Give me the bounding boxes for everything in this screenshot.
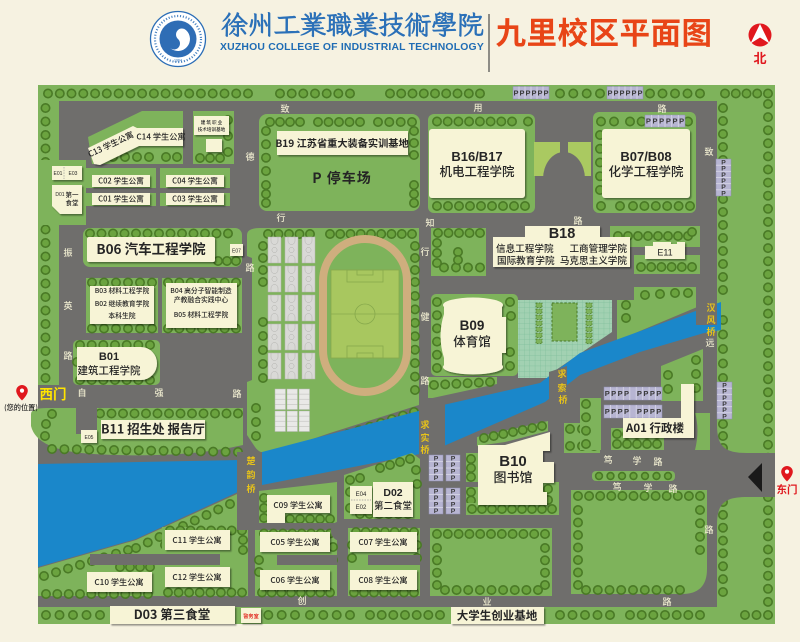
svg-text:九里校区平面图: 九里校区平面图 bbox=[496, 9, 713, 53]
svg-text:路: 路 bbox=[420, 374, 429, 387]
svg-text:致: 致 bbox=[704, 145, 713, 158]
svg-text:E03: E03 bbox=[69, 171, 78, 177]
svg-text:图书馆: 图书馆 bbox=[493, 467, 532, 486]
svg-text:E01: E01 bbox=[54, 171, 63, 177]
svg-text:产教融合实践中心: 产教融合实践中心 bbox=[174, 294, 229, 304]
svg-text:业: 业 bbox=[482, 595, 491, 608]
svg-text:食堂: 食堂 bbox=[66, 197, 80, 207]
svg-text:P: P bbox=[679, 117, 684, 126]
svg-text:自: 自 bbox=[77, 386, 86, 399]
svg-text:路: 路 bbox=[653, 455, 662, 468]
svg-text:学: 学 bbox=[643, 481, 652, 494]
svg-text:C09 学生公寓: C09 学生公寓 bbox=[273, 499, 322, 511]
svg-text:C05 学生公寓: C05 学生公寓 bbox=[270, 536, 319, 548]
svg-text:P: P bbox=[605, 407, 610, 416]
svg-text:P: P bbox=[543, 88, 548, 97]
svg-text:P: P bbox=[618, 407, 623, 416]
svg-text:笃: 笃 bbox=[612, 480, 621, 493]
svg-text:大学生创业基地: 大学生创业基地 bbox=[457, 608, 538, 624]
svg-text:B03 材料工程学院: B03 材料工程学院 bbox=[95, 285, 150, 295]
svg-text:建 筑 职 业: 建 筑 职 业 bbox=[201, 119, 223, 126]
svg-text:P: P bbox=[531, 88, 536, 97]
svg-text:P: P bbox=[451, 508, 456, 515]
svg-text:致: 致 bbox=[280, 102, 289, 115]
svg-text:D03 第三食堂: D03 第三食堂 bbox=[134, 604, 211, 623]
svg-text:求: 求 bbox=[557, 367, 566, 380]
svg-text:建筑工程学院: 建筑工程学院 bbox=[78, 363, 141, 378]
svg-text:行: 行 bbox=[276, 211, 285, 224]
svg-text:求: 求 bbox=[420, 418, 429, 431]
svg-text:1964: 1964 bbox=[174, 59, 182, 63]
svg-text:D01: D01 bbox=[55, 192, 64, 198]
svg-text:路: 路 bbox=[573, 214, 582, 227]
svg-text:P: P bbox=[519, 88, 524, 97]
svg-text:A01 行政楼: A01 行政楼 bbox=[625, 420, 685, 436]
svg-text:C14 学生公寓: C14 学生公寓 bbox=[136, 131, 185, 143]
svg-text:东门: 东门 bbox=[777, 482, 798, 497]
svg-text:路: 路 bbox=[245, 261, 254, 274]
svg-text:知: 知 bbox=[425, 216, 434, 229]
svg-text:用: 用 bbox=[473, 101, 482, 114]
svg-text:B11 招生处 报告厅: B11 招生处 报告厅 bbox=[101, 419, 205, 438]
svg-text:西门: 西门 bbox=[40, 383, 67, 403]
svg-text:笃: 笃 bbox=[603, 453, 612, 466]
svg-text:E02: E02 bbox=[356, 505, 367, 511]
svg-text:P: P bbox=[650, 407, 655, 416]
svg-text:P 停车场: P 停车场 bbox=[312, 168, 372, 188]
svg-text:韵: 韵 bbox=[246, 468, 255, 481]
svg-text:德: 德 bbox=[245, 150, 254, 163]
svg-text:B01: B01 bbox=[99, 351, 119, 363]
svg-text:C11 学生公寓: C11 学生公寓 bbox=[172, 534, 221, 546]
svg-text:桥: 桥 bbox=[420, 443, 429, 456]
svg-text:P: P bbox=[656, 389, 661, 398]
svg-text:国际教育学院: 国际教育学院 bbox=[497, 253, 555, 267]
svg-text:P: P bbox=[513, 88, 518, 97]
svg-text:P: P bbox=[619, 88, 624, 97]
svg-text:P: P bbox=[611, 389, 616, 398]
svg-text:E04: E04 bbox=[356, 492, 367, 498]
svg-text:C04 学生公寓: C04 学生公寓 bbox=[172, 176, 218, 187]
svg-text:P: P bbox=[434, 475, 439, 482]
svg-text:P: P bbox=[451, 475, 456, 482]
svg-text:P: P bbox=[625, 88, 630, 97]
svg-text:P: P bbox=[659, 117, 664, 126]
svg-text:C12 学生公寓: C12 学生公寓 bbox=[172, 571, 221, 583]
svg-text:XUZHOU COLLEGE OF INDUSTRIAL T: XUZHOU COLLEGE OF INDUSTRIAL TECHNOLOGY bbox=[220, 42, 484, 53]
svg-text:北: 北 bbox=[753, 48, 766, 67]
svg-text:桥: 桥 bbox=[246, 482, 255, 495]
svg-text:英: 英 bbox=[63, 299, 72, 312]
svg-text:P: P bbox=[646, 117, 651, 126]
svg-text:技术培训基地: 技术培训基地 bbox=[198, 126, 226, 133]
svg-text:E05: E05 bbox=[85, 435, 94, 441]
svg-text:行: 行 bbox=[420, 245, 429, 258]
svg-text:桥: 桥 bbox=[558, 393, 567, 406]
svg-text:警务室: 警务室 bbox=[243, 612, 259, 620]
svg-text:P: P bbox=[631, 88, 636, 97]
svg-text:强: 强 bbox=[154, 386, 163, 399]
svg-text:P: P bbox=[721, 190, 726, 197]
svg-text:学: 学 bbox=[632, 454, 641, 467]
svg-text:P: P bbox=[605, 389, 610, 398]
svg-text:路: 路 bbox=[63, 349, 72, 362]
svg-text:路: 路 bbox=[662, 595, 671, 608]
svg-text:徐州工業職業技術學院: 徐州工業職業技術學院 bbox=[221, 6, 484, 42]
svg-text:化学工程学院: 化学工程学院 bbox=[608, 161, 684, 180]
svg-text:B05 材料工程学院: B05 材料工程学院 bbox=[174, 309, 229, 319]
svg-text:P: P bbox=[666, 117, 671, 126]
svg-text:P: P bbox=[643, 407, 648, 416]
svg-text:马克思主义学院: 马克思主义学院 bbox=[560, 253, 628, 267]
svg-text:P: P bbox=[722, 413, 727, 420]
svg-text:创: 创 bbox=[297, 594, 306, 607]
svg-text:B02 继续教育学院: B02 继续教育学院 bbox=[95, 298, 150, 308]
svg-text:E11: E11 bbox=[657, 248, 672, 258]
svg-text:C06 学生公寓: C06 学生公寓 bbox=[270, 574, 319, 586]
svg-text:楚: 楚 bbox=[246, 454, 255, 467]
svg-text:P: P bbox=[637, 407, 642, 416]
svg-text:E07: E07 bbox=[232, 249, 241, 255]
svg-text:B06 汽车工程学院: B06 汽车工程学院 bbox=[96, 238, 206, 258]
svg-text:B18: B18 bbox=[549, 226, 576, 242]
svg-text:体育馆: 体育馆 bbox=[453, 331, 491, 350]
svg-text:P: P bbox=[672, 117, 677, 126]
svg-text:P: P bbox=[637, 88, 642, 97]
svg-text:P: P bbox=[525, 88, 530, 97]
svg-text:路: 路 bbox=[704, 523, 713, 536]
svg-text:健: 健 bbox=[420, 310, 429, 323]
svg-text:振: 振 bbox=[63, 246, 72, 259]
svg-text:C01 学生公寓: C01 学生公寓 bbox=[98, 194, 144, 205]
svg-text:P: P bbox=[637, 389, 642, 398]
svg-text:路: 路 bbox=[668, 482, 677, 495]
svg-text:P: P bbox=[624, 407, 629, 416]
svg-text:C08 学生公寓: C08 学生公寓 bbox=[358, 574, 407, 586]
svg-text:路: 路 bbox=[657, 102, 666, 115]
svg-text:C07 学生公寓: C07 学生公寓 bbox=[358, 536, 407, 548]
svg-text:P: P bbox=[434, 508, 439, 515]
svg-text:路: 路 bbox=[232, 387, 241, 400]
svg-text:P: P bbox=[643, 389, 648, 398]
svg-text:P: P bbox=[611, 407, 616, 416]
svg-text:C03 学生公寓: C03 学生公寓 bbox=[172, 194, 218, 205]
svg-text:P: P bbox=[650, 389, 655, 398]
svg-text:P: P bbox=[652, 117, 657, 126]
svg-text:P: P bbox=[618, 389, 623, 398]
svg-text:(您的位置): (您的位置) bbox=[4, 403, 38, 413]
svg-text:第二食堂: 第二食堂 bbox=[374, 498, 412, 512]
svg-text:C02 学生公寓: C02 学生公寓 bbox=[98, 176, 144, 187]
svg-text:B19 江苏省重大装备实训基地: B19 江苏省重大装备实训基地 bbox=[275, 135, 408, 150]
svg-text:P: P bbox=[613, 88, 618, 97]
svg-text:本科生院: 本科生院 bbox=[108, 310, 135, 320]
svg-text:P: P bbox=[656, 407, 661, 416]
svg-text:桥: 桥 bbox=[706, 325, 715, 338]
svg-text:P: P bbox=[537, 88, 542, 97]
svg-text:P: P bbox=[624, 389, 629, 398]
svg-text:机电工程学院: 机电工程学院 bbox=[439, 161, 515, 180]
svg-text:C10 学生公寓: C10 学生公寓 bbox=[94, 576, 143, 588]
svg-text:P: P bbox=[607, 88, 612, 97]
